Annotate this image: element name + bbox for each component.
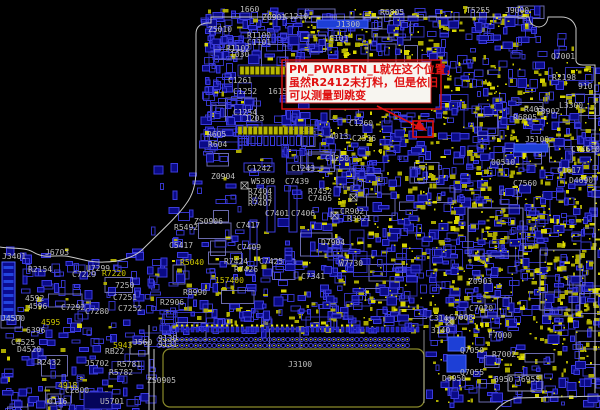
- component-label: C1210: [284, 12, 308, 21]
- component-label: R6805: [513, 113, 537, 122]
- annotation-text-line-2: 虽然R2412未打料，但是依旧: [289, 75, 438, 89]
- component-label: C1242: [247, 164, 271, 173]
- component-label: 7250: [115, 281, 134, 290]
- component-label: C5417: [169, 241, 193, 250]
- annotation-text-line-3: 可以测量到跳变: [289, 88, 366, 102]
- component-label: 1615: [268, 87, 287, 96]
- component-label: C7280: [85, 307, 109, 316]
- component-label: R5492: [174, 223, 198, 232]
- component-label: R5040: [180, 258, 204, 267]
- component-label: C1261: [228, 76, 252, 85]
- component-label: 4596: [28, 302, 47, 311]
- component-label: R3921: [347, 214, 371, 223]
- board-canvas[interactable]: 1660Z0901C1210J1300Z5010R1100C1101R1102C…: [0, 0, 600, 410]
- component-label: C4525: [11, 338, 35, 347]
- component-label: L3300: [559, 101, 583, 110]
- component-label: 1203: [245, 114, 264, 123]
- component-label: C1260: [349, 119, 373, 128]
- component-label: F7000: [488, 331, 512, 340]
- component-label: C1617: [557, 166, 581, 175]
- component-label: R5782: [109, 368, 133, 377]
- component-label: C7341: [301, 272, 325, 281]
- component-label: W5309: [251, 177, 275, 186]
- component-label: C101: [329, 34, 348, 43]
- component-label: R2906: [160, 298, 184, 307]
- component-label: R2198: [552, 73, 576, 82]
- component-label: C7417: [236, 221, 260, 230]
- component-label: R7426: [234, 265, 258, 274]
- component-label: C7020: [469, 304, 493, 313]
- component-label: C7409: [237, 243, 261, 252]
- component-label: R7220: [102, 269, 126, 278]
- component-label: J3100: [288, 360, 312, 369]
- component-label: 6396: [26, 326, 45, 335]
- component-label: Q7050: [460, 346, 484, 355]
- component-label: 3140: [431, 326, 450, 335]
- component-label: J6703: [45, 248, 69, 257]
- component-label: R605: [207, 130, 226, 139]
- component-label: C7425: [259, 257, 283, 266]
- component-label: C7229: [72, 270, 96, 279]
- component-label: C314: [429, 314, 448, 323]
- component-label: C1243: [291, 164, 315, 173]
- component-label: J560: [133, 338, 152, 347]
- component-label: C7401: [265, 209, 289, 218]
- component-label: R7002: [492, 350, 516, 359]
- component-label: Z0901: [262, 13, 286, 22]
- component-label: R604: [208, 140, 227, 149]
- component-label: W7730: [339, 259, 363, 268]
- component-label: 910: [578, 82, 593, 91]
- component-label: C7008: [449, 313, 473, 322]
- component-label: 9131: [158, 340, 177, 349]
- component-label: D6950: [442, 374, 466, 383]
- component-label: J9000: [505, 6, 529, 15]
- component-label: D4690: [569, 176, 593, 185]
- component-label: 1030: [230, 50, 249, 59]
- component-label: C7292: [61, 303, 85, 312]
- component-label: Z0904: [211, 172, 235, 181]
- component-label: J3401: [2, 252, 26, 261]
- component-label: 4595: [41, 318, 60, 327]
- component-label: J1300: [336, 20, 360, 29]
- component-label: 00510: [491, 158, 515, 167]
- component-label: J4500: [1, 314, 25, 323]
- component-label: CY4610: [571, 145, 600, 154]
- component-label: C7405: [308, 194, 332, 203]
- component-label: Q7001: [551, 52, 575, 61]
- component-label: J5100: [525, 135, 549, 144]
- component-label: C7406: [291, 209, 315, 218]
- component-label: 4918: [58, 381, 77, 390]
- component-label: T5255: [466, 6, 490, 15]
- component-label: C7439: [285, 177, 309, 186]
- component-label: R2432: [37, 358, 61, 367]
- component-label: Z5010: [208, 25, 232, 34]
- component-label: Z0903: [468, 277, 492, 286]
- component-label: C7251: [113, 293, 137, 302]
- component-label: 6950: [494, 375, 513, 384]
- component-label: C7252: [118, 304, 142, 313]
- component-label: C7560: [513, 179, 537, 188]
- annotation-text-line-1: PM_PWRBTN_L就在这个位置，: [289, 62, 457, 76]
- component-label: C1101: [247, 38, 271, 47]
- component-label: 5943: [113, 341, 132, 350]
- component-label: J6955: [516, 375, 540, 384]
- component-label: 1660: [240, 5, 259, 14]
- component-label: J5702: [85, 359, 109, 368]
- component-label: C1250: [325, 154, 349, 163]
- component-label: 0116: [48, 397, 67, 406]
- component-label: C2536: [352, 134, 376, 143]
- component-label: R6805: [380, 8, 404, 17]
- component-label: ZS0906: [194, 217, 223, 226]
- component-label: C1252: [233, 87, 257, 96]
- component-label: U5701: [100, 397, 124, 406]
- component-label: 4013: [329, 132, 348, 141]
- boardviewer-window: 1660Z0901C1210J1300Z5010R1100C1101R1102C…: [0, 0, 600, 410]
- component-label: ZS0905: [147, 376, 176, 385]
- component-label: R8990: [183, 288, 207, 297]
- component-label: D7904: [321, 238, 345, 247]
- component-label: R2154: [28, 265, 52, 274]
- component-label: 157400: [215, 276, 244, 285]
- component-label: R7407: [248, 199, 272, 208]
